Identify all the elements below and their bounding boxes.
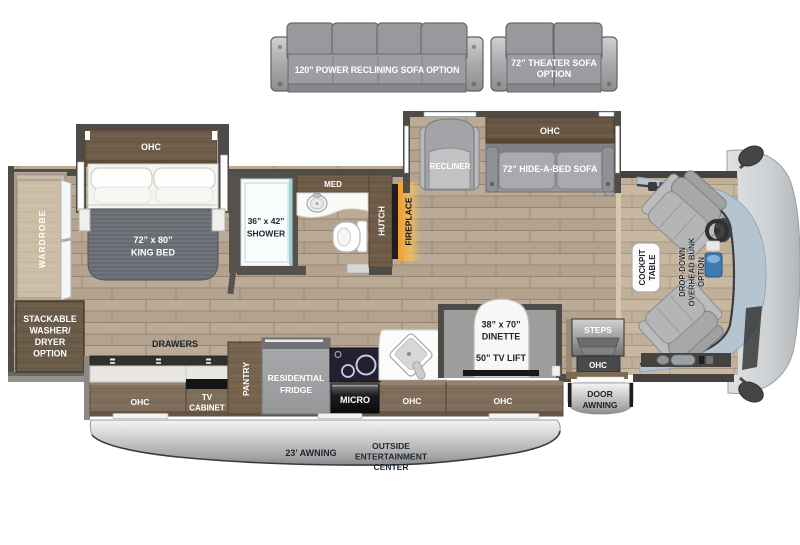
svg-text:SHOWER: SHOWER: [247, 229, 285, 239]
svg-text:OPTION: OPTION: [33, 349, 67, 359]
svg-text:DINETTE: DINETTE: [482, 332, 521, 342]
svg-text:WARDROBE: WARDROBE: [37, 210, 47, 269]
svg-text:DRYER: DRYER: [35, 337, 66, 347]
svg-text:OHC: OHC: [403, 396, 422, 406]
svg-text:PANTRY: PANTRY: [241, 362, 251, 396]
svg-text:DOOR: DOOR: [587, 389, 613, 399]
svg-text:OHC: OHC: [540, 126, 561, 136]
svg-text:23’ AWNING: 23’ AWNING: [285, 448, 336, 458]
svg-text:120” POWER RECLINING SOFA OPTI: 120” POWER RECLINING SOFA OPTION: [295, 65, 460, 75]
svg-text:38” x 70”: 38” x 70”: [481, 320, 520, 330]
svg-text:MICRO: MICRO: [340, 395, 370, 405]
svg-text:RECLINER: RECLINER: [430, 162, 471, 171]
svg-text:OVERHEAD BUNK: OVERHEAD BUNK: [688, 237, 697, 306]
svg-text:72” THEATER SOFA: 72” THEATER SOFA: [511, 58, 597, 68]
svg-text:TV: TV: [202, 393, 213, 402]
svg-text:72” x 80”: 72” x 80”: [133, 235, 172, 245]
svg-text:OHC: OHC: [131, 397, 150, 407]
svg-text:OHC: OHC: [589, 361, 607, 370]
svg-text:72” HIDE-A-BED SOFA: 72” HIDE-A-BED SOFA: [503, 164, 598, 174]
svg-text:36” x 42”: 36” x 42”: [248, 216, 285, 226]
svg-text:OHC: OHC: [494, 396, 513, 406]
svg-text:FIREPLACE: FIREPLACE: [404, 197, 414, 246]
svg-text:CENTER: CENTER: [374, 462, 409, 472]
svg-text:STEPS: STEPS: [584, 325, 612, 335]
svg-text:ENTERTAINMENT: ENTERTAINMENT: [355, 452, 428, 462]
svg-text:CABINET: CABINET: [189, 404, 225, 413]
svg-text:TABLE: TABLE: [648, 254, 657, 281]
svg-text:FRIDGE: FRIDGE: [280, 385, 312, 395]
svg-text:RESIDENTIAL: RESIDENTIAL: [268, 373, 325, 383]
svg-text:DROP-DOWN: DROP-DOWN: [678, 247, 687, 297]
svg-text:OPTION: OPTION: [537, 69, 572, 79]
svg-text:OPTION: OPTION: [697, 257, 706, 287]
svg-text:OHC: OHC: [141, 142, 162, 152]
svg-text:KING BED: KING BED: [131, 248, 176, 258]
svg-text:DRAWERS: DRAWERS: [152, 339, 198, 349]
svg-text:COCKPIT: COCKPIT: [638, 249, 647, 285]
svg-text:WASHER/: WASHER/: [29, 326, 71, 336]
svg-text:MED: MED: [324, 180, 342, 189]
svg-text:OUTSIDE: OUTSIDE: [372, 441, 410, 451]
svg-text:50” TV LIFT: 50” TV LIFT: [476, 353, 527, 363]
svg-text:STACKABLE: STACKABLE: [23, 314, 77, 324]
svg-text:HUTCH: HUTCH: [377, 206, 387, 236]
svg-text:AWNING: AWNING: [583, 400, 618, 410]
